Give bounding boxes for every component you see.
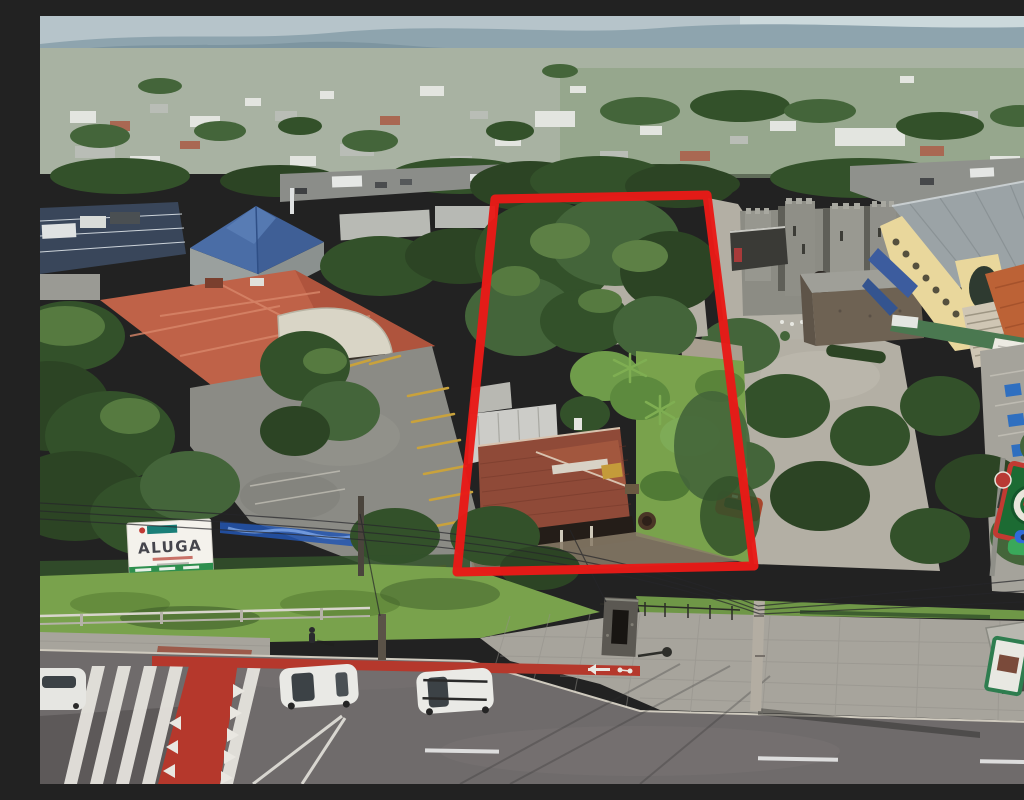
- bus-shelter: [986, 616, 1024, 700]
- stone-hut: [601, 597, 638, 657]
- dark-shed: [730, 226, 788, 271]
- aluga-sign-title: ALUGA: [138, 536, 203, 557]
- yellow-machine: [601, 463, 623, 480]
- aerial-photo-canvas: ALUGA: [40, 16, 1024, 784]
- parked-white-car: [40, 668, 86, 710]
- aerial-photo: ALUGA: [40, 16, 1024, 784]
- round-sign: [995, 472, 1011, 488]
- chimney: [574, 418, 582, 430]
- white-car-driving: [279, 663, 360, 712]
- wood-pole: [378, 614, 386, 660]
- white-truck: [42, 223, 77, 239]
- parcel-canopy: [465, 196, 720, 360]
- bus: [332, 175, 362, 187]
- utility-pole: [358, 496, 364, 576]
- handicap-marking: [1007, 413, 1024, 427]
- white-car-with-roof-rails: [416, 667, 495, 718]
- handicap-marking: [1004, 383, 1022, 397]
- solar-panel-building: [40, 202, 186, 300]
- mast: [290, 188, 294, 214]
